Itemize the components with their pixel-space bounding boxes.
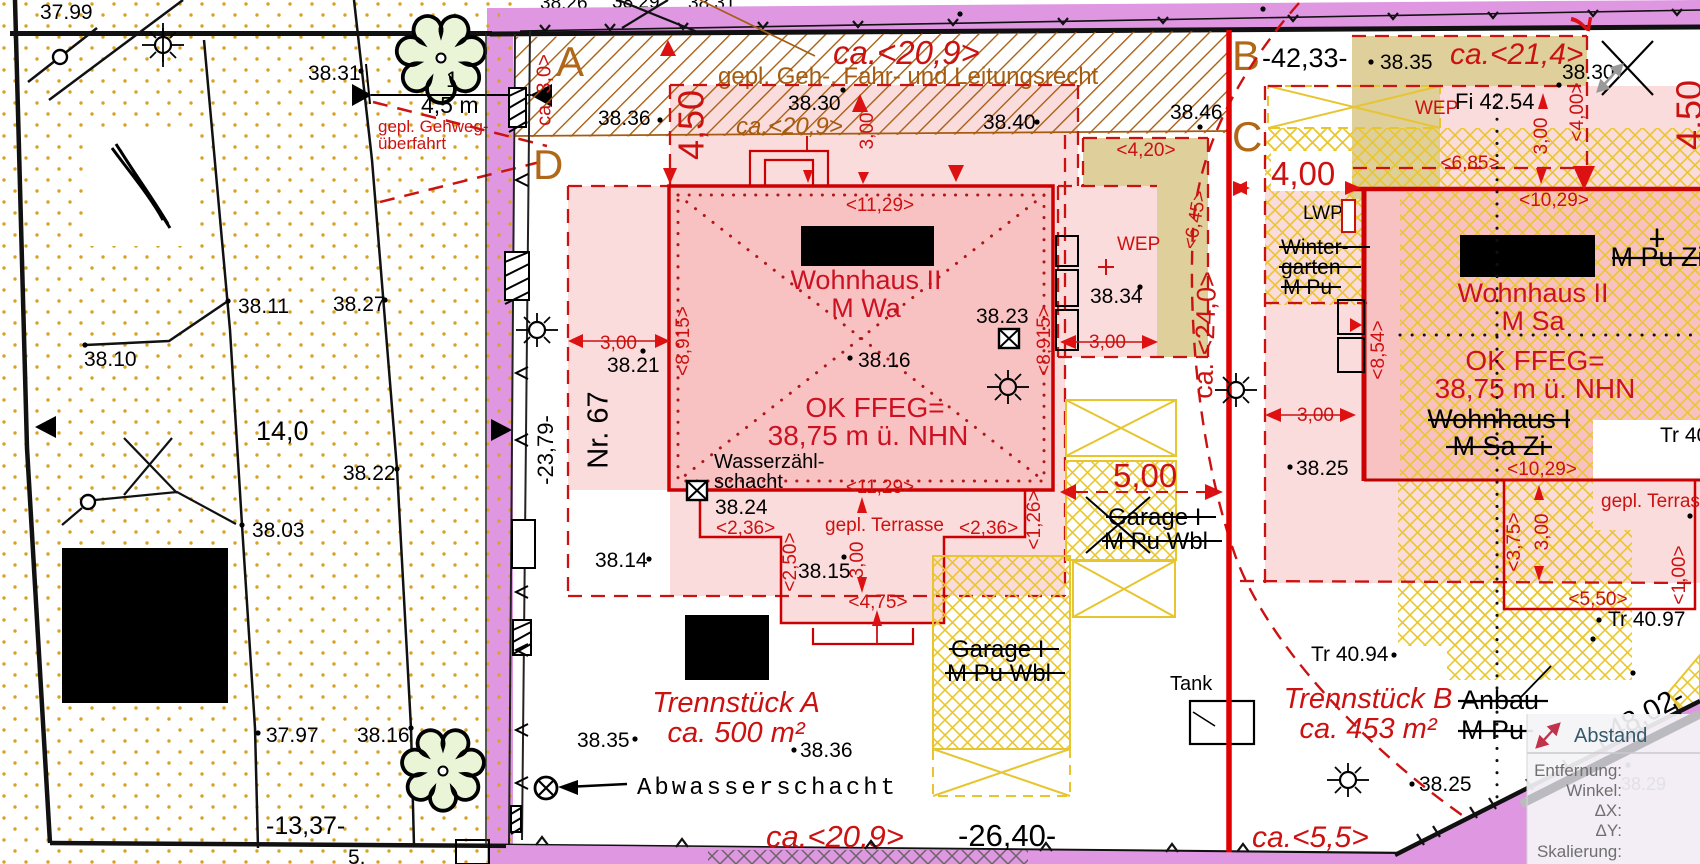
- svg-text:ΔX:: ΔX:: [1595, 801, 1622, 820]
- svg-text:<11,29>: <11,29>: [846, 477, 914, 498]
- svg-text:5,: 5,: [348, 846, 366, 864]
- svg-text:38.03: 38.03: [252, 519, 305, 542]
- svg-text:WEP: WEP: [1117, 234, 1160, 255]
- svg-text:<10,29>: <10,29>: [1519, 190, 1589, 211]
- svg-text:-23,79-: -23,79-: [533, 415, 558, 485]
- svg-text:schacht: schacht: [714, 471, 783, 493]
- svg-text:38.36: 38.36: [598, 107, 651, 130]
- svg-text:ca.<20,9>: ca.<20,9>: [736, 113, 843, 140]
- svg-text:<8,915>: <8,915>: [673, 306, 694, 376]
- svg-text:B: B: [1232, 32, 1260, 79]
- svg-text:38.14: 38.14: [595, 549, 648, 572]
- svg-text:<4,20>: <4,20>: [1116, 140, 1175, 161]
- svg-text:38.27: 38.27: [333, 293, 386, 316]
- svg-text:<2,36>: <2,36>: [716, 518, 775, 539]
- svg-text:38,75 m ü. NHN: 38,75 m ü. NHN: [768, 420, 969, 451]
- svg-text:ca. <24,0>: ca. <24,0>: [1188, 271, 1222, 400]
- svg-text:ca. 500 m²: ca. 500 m²: [668, 717, 806, 749]
- svg-text:38.22: 38.22: [343, 462, 396, 485]
- svg-text:38.25: 38.25: [1419, 773, 1472, 796]
- svg-text:38.35: 38.35: [577, 729, 630, 752]
- svg-text:WEP: WEP: [1415, 98, 1458, 119]
- svg-text:<5,50>: <5,50>: [1568, 589, 1627, 610]
- svg-text:38.46: 38.46: [1170, 101, 1223, 124]
- svg-text:ca. 3,0>: ca. 3,0>: [533, 54, 555, 126]
- svg-text:38,75 m ü. NHN: 38,75 m ü. NHN: [1435, 373, 1636, 404]
- svg-text:<6,85>: <6,85>: [1440, 153, 1499, 174]
- svg-text:Trennstück B: Trennstück B: [1284, 683, 1453, 715]
- svg-text:Tr 40: Tr 40: [1660, 424, 1700, 447]
- svg-text:38.16: 38.16: [858, 349, 911, 372]
- svg-text:3,00: 3,00: [857, 113, 878, 150]
- svg-text:OK FFEG=: OK FFEG=: [805, 392, 944, 423]
- svg-text:ca.<5,5>: ca.<5,5>: [1252, 821, 1369, 854]
- svg-text:gepl. Terrasse: gepl. Terrasse: [825, 515, 944, 536]
- svg-text:-42,33-: -42,33-: [1262, 43, 1348, 73]
- svg-text:38.21: 38.21: [607, 354, 660, 377]
- svg-text:38.31: 38.31: [308, 62, 361, 85]
- svg-text:gepl. Terrasse: gepl. Terrasse: [1601, 491, 1700, 512]
- svg-text:<4,00>: <4,00>: [1567, 82, 1588, 141]
- svg-text:<4,75>: <4,75>: [848, 592, 907, 613]
- svg-text:<1,00>: <1,00>: [1669, 545, 1690, 604]
- svg-text:Abwasserschacht: Abwasserschacht: [637, 775, 898, 802]
- svg-text:Tr 40.97: Tr 40.97: [1608, 608, 1685, 631]
- svg-text:4,5 m: 4,5 m: [421, 92, 479, 118]
- svg-text:3,00: 3,00: [1532, 514, 1553, 551]
- svg-text:38.34: 38.34: [1090, 285, 1143, 308]
- svg-text:M Wa: M Wa: [831, 293, 901, 323]
- svg-text:38.36: 38.36: [800, 739, 853, 762]
- svg-text:Fi 42.54: Fi 42.54: [1455, 89, 1535, 114]
- svg-text:3,00: 3,00: [1531, 118, 1552, 155]
- svg-text:4,00: 4,00: [1271, 155, 1335, 192]
- svg-text:14,0: 14,0: [256, 416, 309, 446]
- svg-text:C: C: [1232, 113, 1262, 160]
- svg-text:38.11: 38.11: [238, 295, 289, 318]
- svg-text:LWP: LWP: [1303, 203, 1343, 224]
- svg-text:37.99: 37.99: [40, 1, 93, 24]
- svg-text:38.15: 38.15: [798, 560, 851, 583]
- svg-text:Trennstück A: Trennstück A: [652, 687, 820, 719]
- svg-text:38.35: 38.35: [1380, 51, 1433, 74]
- svg-text:<11,29>: <11,29>: [846, 195, 914, 216]
- svg-text:38.10: 38.10: [84, 348, 137, 371]
- svg-text:38.40: 38.40: [983, 111, 1036, 134]
- svg-text:<8,915>: <8,915>: [1034, 306, 1055, 376]
- svg-text:4,50: 4,50: [1669, 80, 1700, 150]
- svg-text:<8,54>: <8,54>: [1368, 320, 1389, 379]
- svg-text:Wasserzähl-: Wasserzähl-: [714, 451, 824, 473]
- svg-text:A: A: [556, 38, 584, 85]
- svg-text:<2,36>: <2,36>: [959, 518, 1018, 539]
- svg-text:Nr. 67: Nr. 67: [583, 391, 615, 468]
- svg-text:5,00: 5,00: [1113, 457, 1177, 494]
- svg-text:M Sa: M Sa: [1501, 306, 1565, 336]
- svg-text:1: 1: [446, 67, 458, 92]
- svg-text:Abstand: Abstand: [1574, 725, 1647, 747]
- svg-text:38.16: 38.16: [357, 724, 410, 747]
- svg-text:Tank: Tank: [1170, 673, 1213, 695]
- svg-text:OK FFEG=: OK FFEG=: [1465, 345, 1604, 376]
- svg-text:38.25: 38.25: [1296, 457, 1349, 480]
- svg-text:überfahrt: überfahrt: [378, 134, 446, 153]
- svg-text:4,50: 4,50: [671, 90, 712, 160]
- svg-text:Wohnhaus II: Wohnhaus II: [1457, 278, 1608, 308]
- svg-text:37.97: 37.97: [266, 724, 319, 747]
- svg-text:-13,37-: -13,37-: [266, 812, 345, 840]
- svg-text:Entfernung:: Entfernung:: [1534, 761, 1622, 780]
- svg-text:38.24: 38.24: [715, 496, 768, 519]
- svg-text:38.30: 38.30: [788, 92, 841, 115]
- svg-text:<10,29>: <10,29>: [1507, 459, 1577, 480]
- svg-text:Skalierung:: Skalierung:: [1537, 842, 1622, 861]
- svg-text:3,00: 3,00: [600, 333, 637, 354]
- svg-text:<3,75>: <3,75>: [1504, 512, 1525, 571]
- svg-text:ca. 453 m²: ca. 453 m²: [1300, 713, 1438, 745]
- svg-text:Tr 40.94: Tr 40.94: [1311, 643, 1389, 666]
- svg-text:D: D: [533, 141, 563, 188]
- svg-text:<1,26>: <1,26>: [1024, 490, 1045, 549]
- svg-text:Winkel:: Winkel:: [1566, 781, 1622, 800]
- svg-text:38.23: 38.23: [976, 305, 1029, 328]
- svg-text:ΔY:: ΔY:: [1596, 821, 1622, 840]
- svg-text:Wohnhaus II: Wohnhaus II: [790, 265, 941, 295]
